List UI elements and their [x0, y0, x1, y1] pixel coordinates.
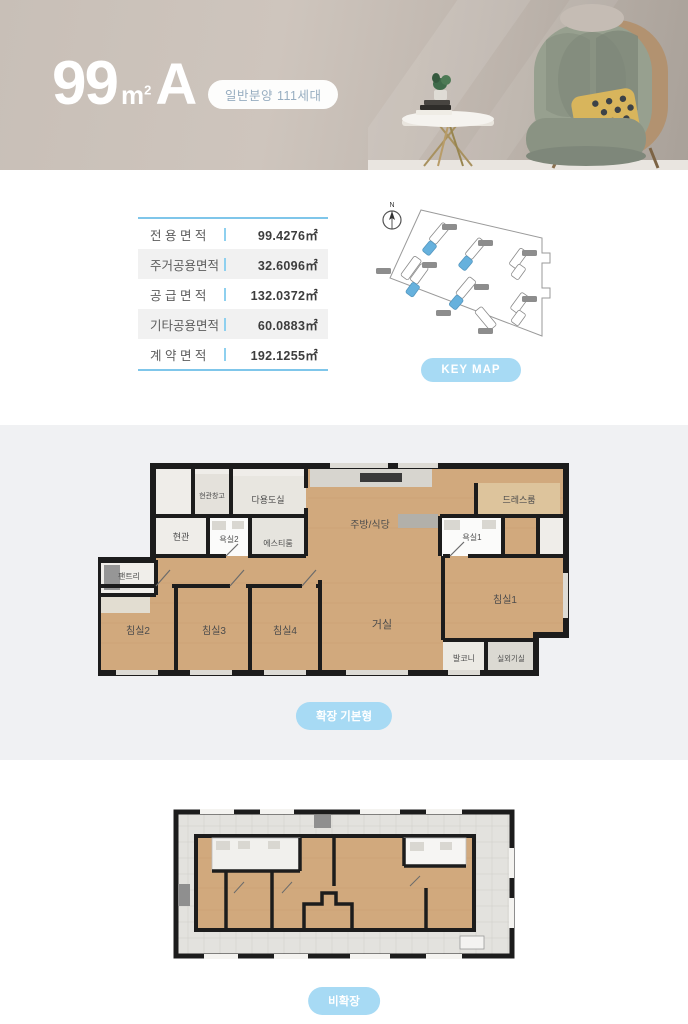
area-value: 99.4276㎡ — [226, 225, 328, 244]
room-label-bed1: 침실1 — [493, 594, 517, 606]
table-row: 전 용 면 적 99.4276㎡ — [138, 219, 328, 249]
keymap-svg: N — [374, 198, 568, 343]
compass-north-label: N — [389, 202, 394, 209]
room-label-st-room: 에스티룸 — [263, 539, 292, 548]
room-label-balcony: 발코니 — [453, 653, 475, 663]
area-label: 전 용 면 적 — [138, 225, 224, 244]
compass-icon: N — [383, 202, 401, 229]
table-row: 기타공용면적 60.0883㎡ — [138, 309, 328, 339]
unit-measure: m2 — [121, 80, 151, 111]
keymap: N — [374, 198, 568, 382]
room-label-living: 거실 — [372, 618, 392, 631]
area-value: 192.1255㎡ — [226, 345, 328, 364]
room-label-entry: 현관 — [173, 532, 190, 542]
room-label-ac-room: 실외기실 — [497, 653, 525, 663]
page: 99 m2 A 일반분양 111세대 전 용 면 적 99.4276㎡ 주거공용… — [0, 0, 688, 1024]
area-value: 60.0883㎡ — [226, 315, 328, 334]
area-label: 계 약 면 적 — [138, 345, 224, 364]
table-row: 주거공용면적 32.6096㎡ — [138, 249, 328, 279]
floor — [368, 160, 688, 170]
expanded-type-button[interactable]: 확장 기본형 — [296, 702, 392, 730]
unit-type: A — [155, 51, 197, 118]
room-label-dress: 드레스룸 — [502, 495, 535, 505]
room-label-entry-storage: 현관창고 — [199, 491, 225, 500]
room-label-bed4: 침실4 — [273, 625, 297, 637]
wingback-chair — [526, 4, 668, 168]
area-label: 기타공용면적 — [138, 315, 224, 334]
area-label: 공 급 면 적 — [138, 285, 224, 304]
hero-banner: 99 m2 A 일반분양 111세대 — [0, 0, 688, 170]
keymap-button[interactable]: KEY MAP — [421, 358, 520, 382]
basic-type-button[interactable]: 비확장 — [308, 987, 380, 1015]
room-label-utility: 다용도실 — [251, 495, 284, 505]
floorplan-basic — [164, 798, 524, 973]
chair-photo — [368, 0, 688, 170]
sale-badge: 일반분양 111세대 — [208, 80, 338, 109]
area-value: 32.6096㎡ — [226, 255, 328, 274]
room-label-kitchen: 주방/식당 — [350, 519, 390, 531]
room-label-bath2: 욕실2 — [219, 534, 239, 544]
table-row: 공 급 면 적 132.0372㎡ — [138, 279, 328, 309]
room-label-bath1: 욕실1 — [462, 532, 482, 542]
table-row: 계 약 면 적 192.1255㎡ — [138, 339, 328, 369]
room-label-bed2: 침실2 — [126, 625, 150, 637]
area-value: 132.0372㎡ — [226, 285, 328, 304]
area-label: 주거공용면적 — [138, 255, 224, 274]
area-table: 전 용 면 적 99.4276㎡ 주거공용면적 32.6096㎡ 공 급 면 적… — [138, 217, 328, 371]
room-label-bed3: 침실3 — [202, 625, 226, 637]
unit-title: 99 m2 A — [52, 48, 197, 119]
room-label-pantry: 팬트리 — [118, 572, 140, 581]
floorplan-expanded: 현관창고 다용도실 현관 욕실2 에스티룸 주방/식당 드레스룸 욕실1 팬트리… — [98, 458, 590, 694]
unit-size: 99 — [52, 48, 117, 119]
